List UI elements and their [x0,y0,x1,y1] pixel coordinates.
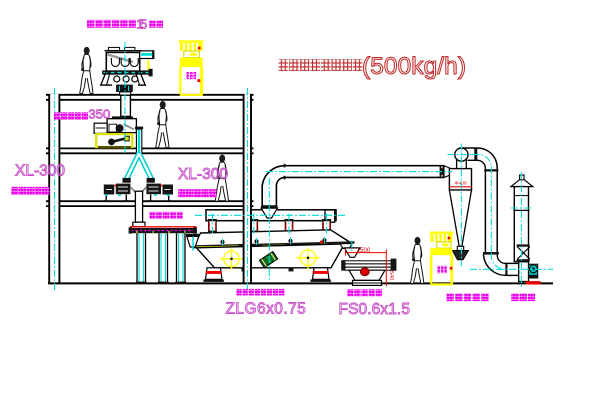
svg-text:FS0.6x1.5: FS0.6x1.5 [339,301,411,318]
svg-text:ZLG6x0.75: ZLG6x0.75 [226,301,307,318]
svg-text:540: 540 [388,271,394,280]
svg-text:1500: 1500 [357,247,371,254]
svg-text:Φ400: Φ400 [455,181,467,187]
svg-text:XL-300: XL-300 [15,163,65,180]
svg-text:350: 350 [89,107,111,122]
svg-text:XL-300: XL-300 [178,166,228,183]
svg-text:1.5: 1.5 [136,18,147,32]
svg-text:(500kg/h): (500kg/h) [362,53,466,80]
